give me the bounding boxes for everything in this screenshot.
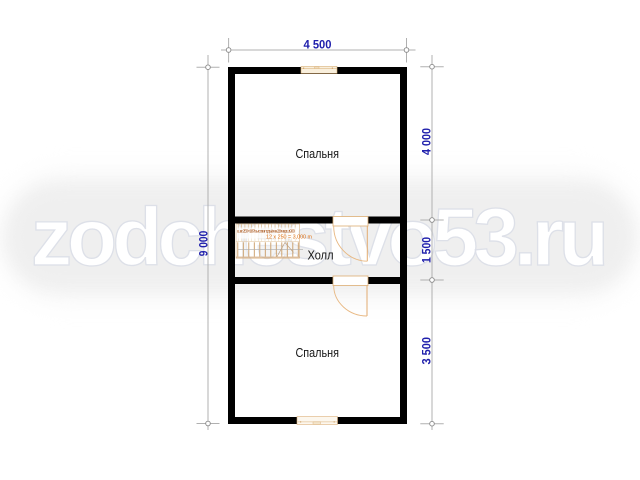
svg-text:Холл: Холл	[308, 248, 334, 263]
svg-text:4 500: 4 500	[304, 40, 332, 52]
svg-text:4 000: 4 000	[422, 128, 434, 155]
svg-text:3 500: 3 500	[422, 337, 434, 365]
svg-text:12 x 250 = 3,000 m: 12 x 250 = 3,000 m	[266, 234, 313, 240]
svg-text:9 000: 9 000	[199, 231, 211, 257]
svg-text:Спальня: Спальня	[295, 345, 339, 360]
svg-text:1 500: 1 500	[422, 237, 434, 263]
svg-text:шаг 250×187 высота подъёма 2,8: шаг 250×187 высота подъёма 2,8 марш 900	[237, 229, 295, 234]
svg-text:Спальня: Спальня	[295, 146, 339, 161]
